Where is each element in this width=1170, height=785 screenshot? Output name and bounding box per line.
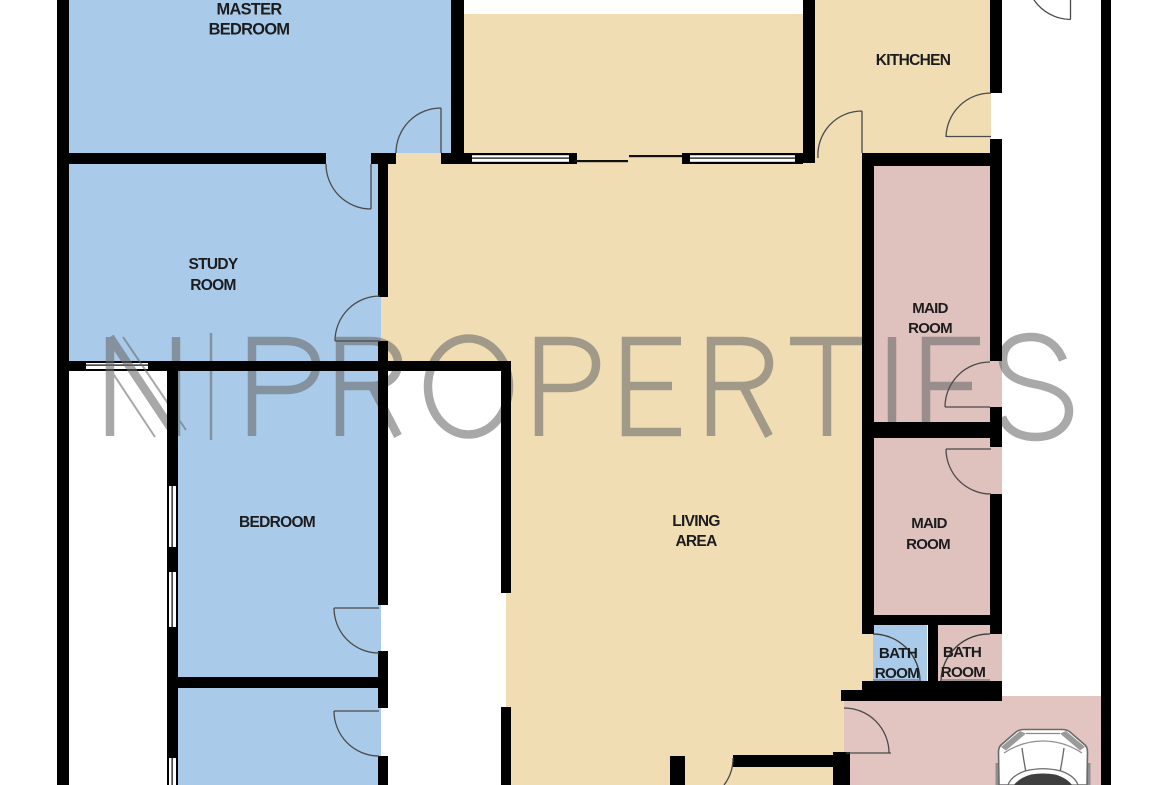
svg-text:ROOM: ROOM: [941, 664, 985, 681]
svg-text:AREA: AREA: [675, 533, 717, 550]
svg-text:MAID: MAID: [912, 300, 948, 317]
svg-text:BATH: BATH: [943, 644, 981, 661]
svg-text:ROOM: ROOM: [190, 277, 235, 294]
svg-text:BEDROOM: BEDROOM: [209, 21, 290, 39]
svg-text:BATH: BATH: [879, 645, 917, 662]
svg-text:BEDROOM: BEDROOM: [239, 514, 315, 531]
svg-text:MAID: MAID: [911, 515, 947, 532]
svg-text:KITHCHEN: KITHCHEN: [876, 52, 951, 69]
svg-text:ROOM: ROOM: [906, 536, 950, 553]
svg-text:ROOM: ROOM: [875, 665, 919, 682]
svg-text:ROOM: ROOM: [908, 320, 952, 337]
svg-text:MASTER: MASTER: [216, 1, 282, 19]
svg-text:LIVING: LIVING: [672, 513, 720, 530]
svg-text:STUDY: STUDY: [188, 256, 238, 273]
